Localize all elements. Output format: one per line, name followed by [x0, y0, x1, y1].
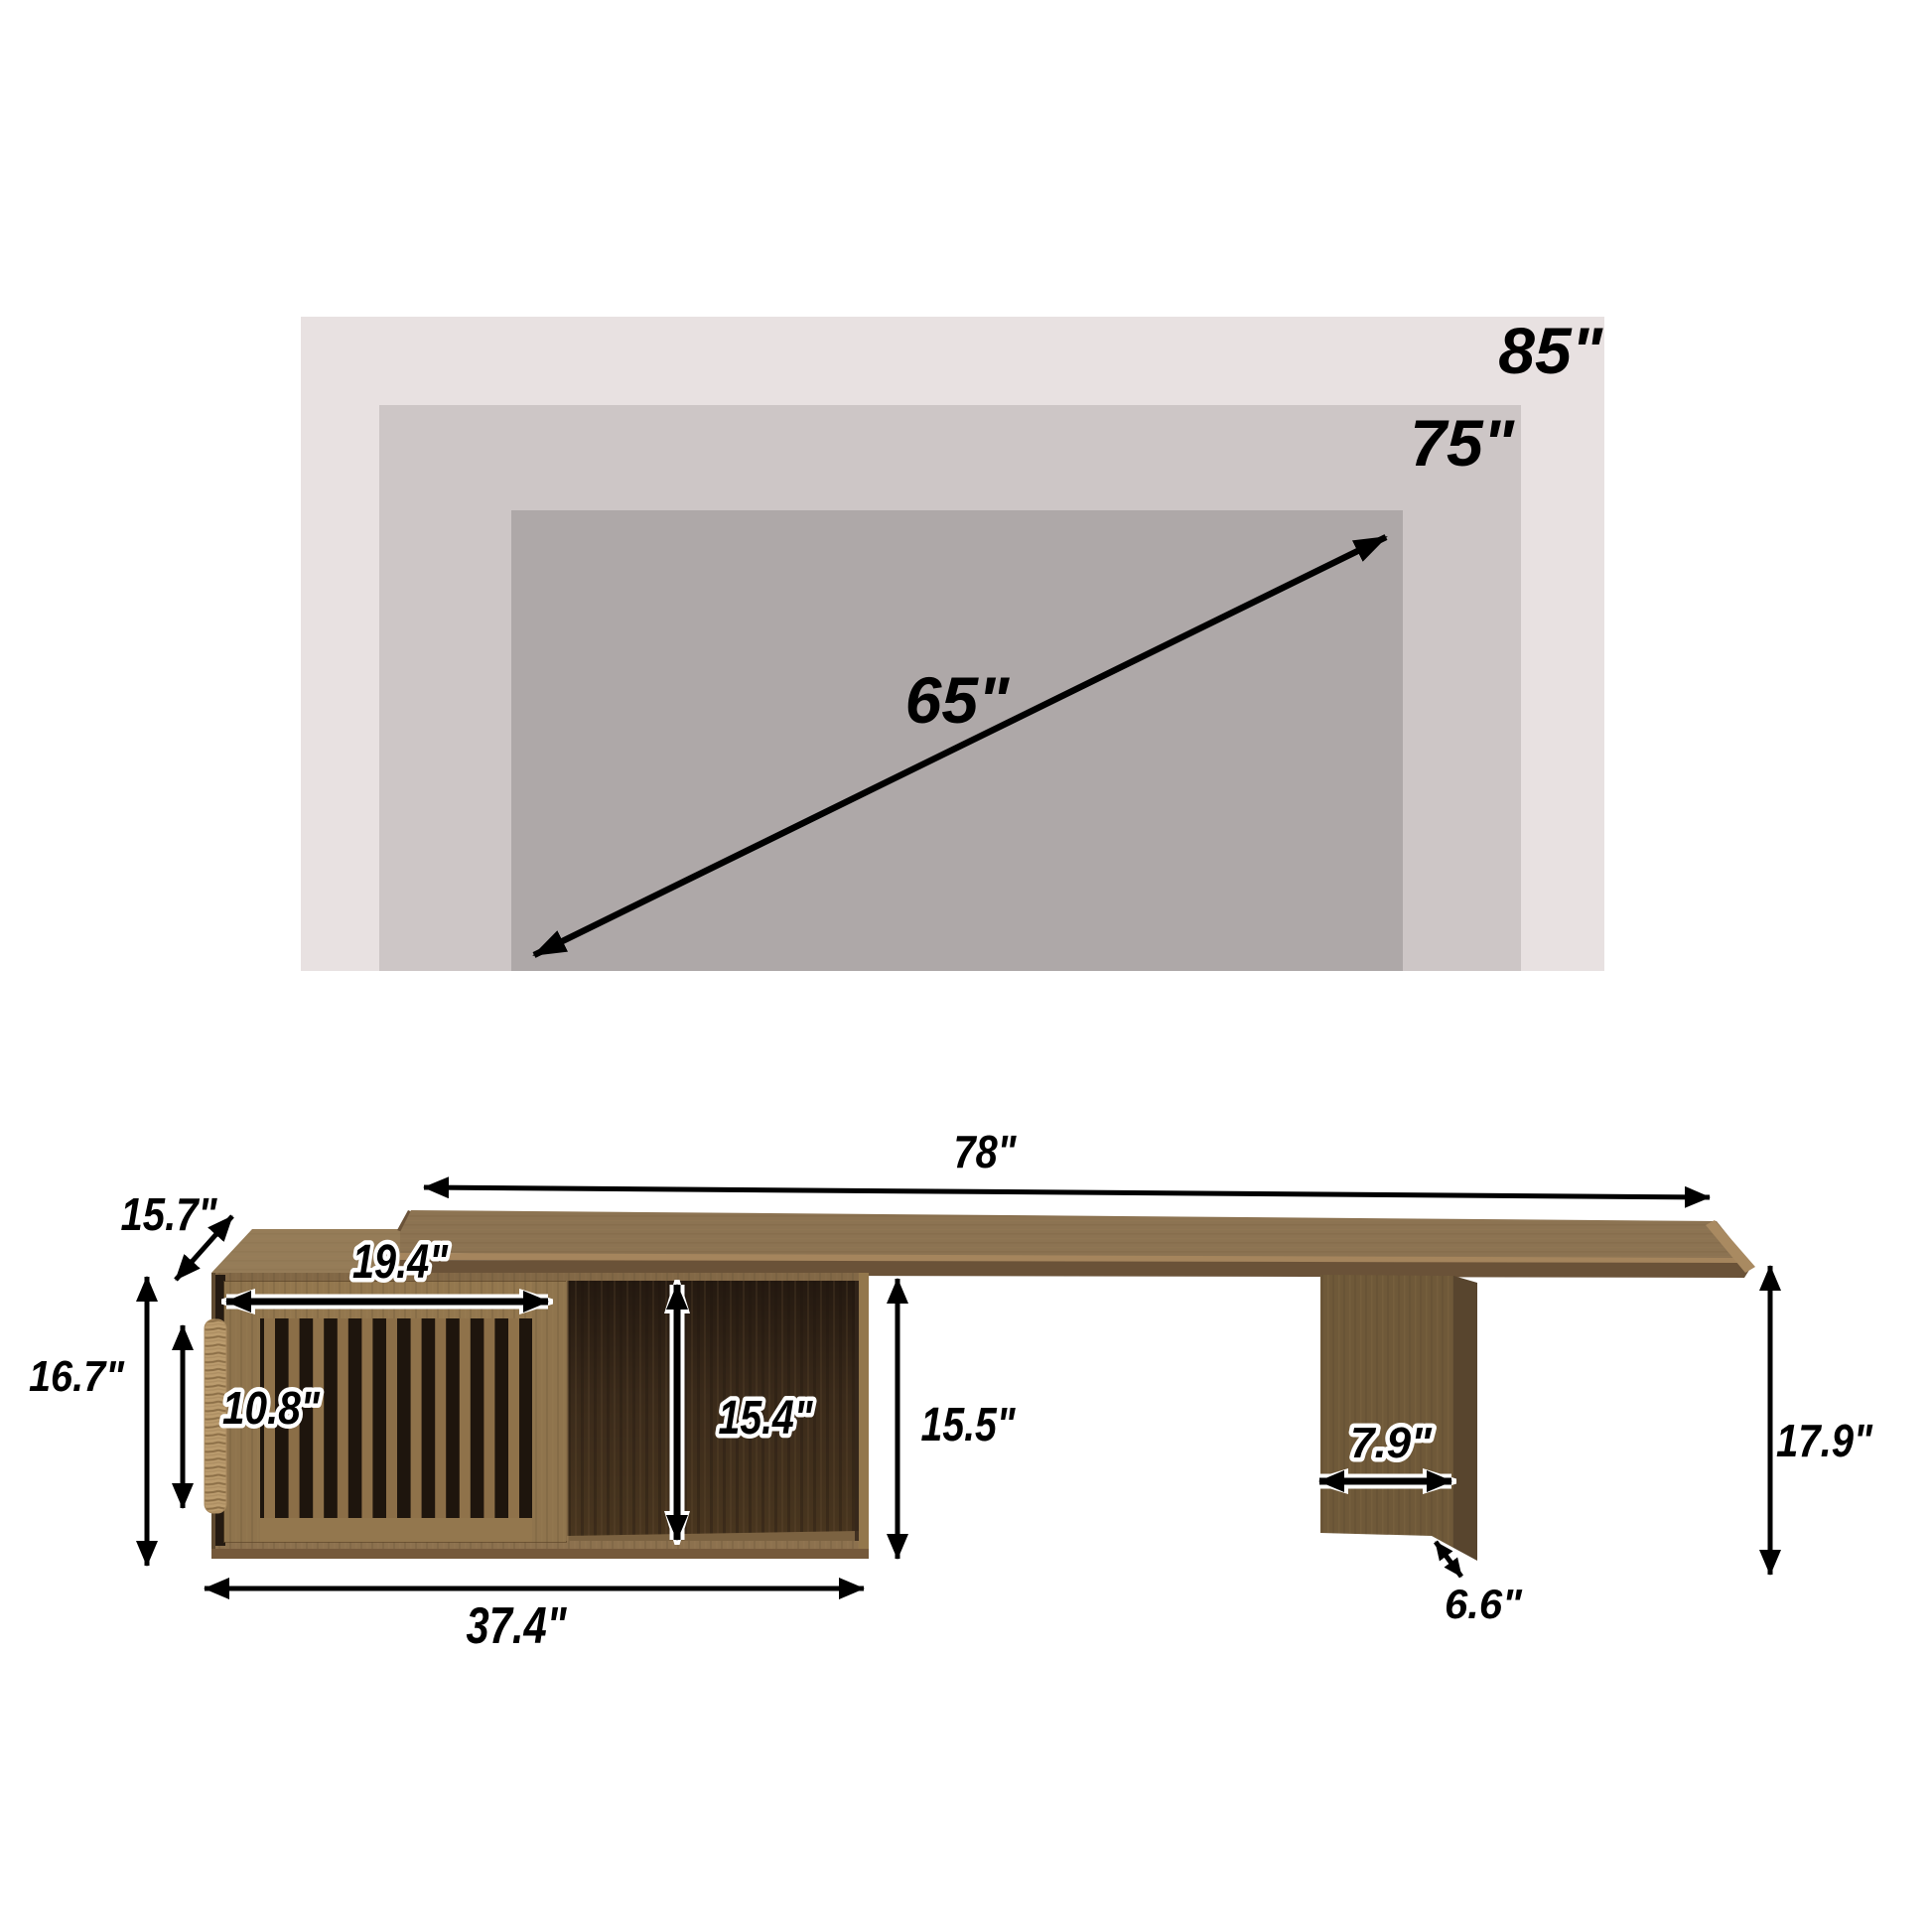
svg-text:10.8": 10.8"	[222, 1382, 321, 1434]
svg-text:19.4": 19.4"	[352, 1236, 449, 1289]
svg-text:16.7": 16.7"	[29, 1352, 125, 1401]
svg-text:15.5": 15.5"	[921, 1399, 1017, 1451]
svg-text:85": 85"	[1498, 314, 1602, 387]
svg-text:78": 78"	[954, 1126, 1018, 1177]
svg-text:37.4": 37.4"	[467, 1597, 568, 1655]
svg-text:75": 75"	[1410, 406, 1514, 480]
svg-text:15.4": 15.4"	[719, 1392, 814, 1445]
svg-text:6.6": 6.6"	[1445, 1581, 1523, 1627]
svg-text:15.7": 15.7"	[121, 1188, 218, 1240]
svg-text:17.9": 17.9"	[1776, 1415, 1873, 1466]
svg-text:65": 65"	[905, 663, 1010, 737]
svg-text:7.9": 7.9"	[1350, 1419, 1433, 1467]
